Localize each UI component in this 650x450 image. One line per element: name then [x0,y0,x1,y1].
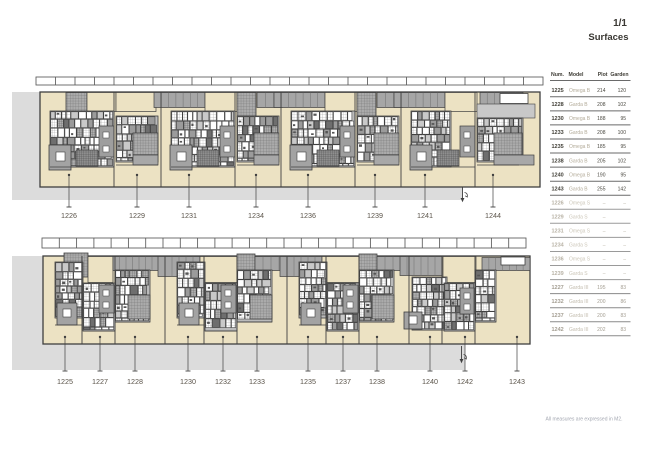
svg-text:188: 188 [597,116,606,122]
svg-text:Garda S: Garda S [569,215,588,221]
svg-text:1226: 1226 [61,211,77,220]
svg-text:Garda III: Garda III [569,327,588,333]
svg-text:1233: 1233 [552,130,564,136]
svg-text:–: – [623,271,626,277]
svg-text:1225: 1225 [552,88,564,94]
svg-text:83: 83 [620,285,626,291]
svg-text:1231: 1231 [552,229,564,235]
svg-text:Num.: Num. [551,72,565,78]
svg-text:1/1: 1/1 [613,18,627,29]
svg-text:1236: 1236 [300,211,316,220]
svg-text:–: – [603,271,606,277]
svg-text:1231: 1231 [181,211,197,220]
svg-text:Omega S: Omega S [569,201,591,207]
svg-text:Garda B: Garda B [569,186,588,192]
svg-text:202: 202 [597,327,606,333]
svg-text:190: 190 [597,172,606,178]
svg-text:1244: 1244 [485,211,501,220]
svg-text:95: 95 [620,116,626,122]
svg-text:1232: 1232 [552,299,564,305]
svg-text:200: 200 [597,299,606,305]
svg-text:255: 255 [597,186,606,192]
svg-text:185: 185 [597,144,606,150]
svg-text:Garda III: Garda III [569,285,588,291]
svg-text:Garda S: Garda S [569,243,588,249]
svg-text:Omega B: Omega B [569,172,591,178]
svg-text:100: 100 [618,130,627,136]
svg-text:1240: 1240 [422,377,438,386]
svg-text:102: 102 [618,158,627,164]
svg-text:Omega S: Omega S [569,229,591,235]
svg-text:Garda S: Garda S [569,271,588,277]
svg-text:1229: 1229 [552,215,564,221]
svg-text:Model: Model [569,72,585,78]
svg-text:205: 205 [597,158,606,164]
svg-text:1243: 1243 [552,186,564,192]
svg-text:1235: 1235 [300,377,316,386]
svg-text:1233: 1233 [249,377,265,386]
svg-text:All measures are expressed in: All measures are expressed in M2. [546,417,623,423]
svg-text:1239: 1239 [552,271,564,277]
svg-text:1228: 1228 [552,102,564,108]
svg-text:95: 95 [620,144,626,150]
svg-text:–: – [623,257,626,263]
svg-text:1240: 1240 [552,172,564,178]
svg-text:1234: 1234 [248,211,264,220]
svg-text:1234: 1234 [552,243,565,249]
svg-text:142: 142 [618,186,627,192]
svg-text:208: 208 [597,130,606,136]
svg-text:1229: 1229 [129,211,145,220]
svg-text:Garda III: Garda III [569,299,588,305]
svg-text:120: 120 [618,88,627,94]
svg-text:1242: 1242 [552,327,564,333]
svg-text:1238: 1238 [552,158,564,164]
svg-text:–: – [603,243,606,249]
svg-text:Omega B: Omega B [569,88,591,94]
svg-text:1239: 1239 [367,211,383,220]
svg-text:Garda B: Garda B [569,102,588,108]
svg-text:Garda B: Garda B [569,158,588,164]
svg-text:1230: 1230 [552,116,564,122]
svg-text:1227: 1227 [92,377,108,386]
svg-text:Surfaces: Surfaces [588,32,628,43]
svg-text:1242: 1242 [457,377,473,386]
svg-text:Garda B: Garda B [569,130,588,136]
svg-text:–: – [603,257,606,263]
svg-text:1230: 1230 [180,377,196,386]
svg-text:Plot: Plot [598,72,608,78]
svg-text:Omega B: Omega B [569,144,591,150]
svg-text:1227: 1227 [552,285,564,291]
svg-text:102: 102 [618,102,627,108]
svg-text:–: – [603,201,606,207]
svg-text:Garda III: Garda III [569,313,588,319]
svg-text:1237: 1237 [552,313,564,319]
svg-text:1226: 1226 [552,201,564,207]
svg-text:95: 95 [620,172,626,178]
svg-text:1241: 1241 [417,211,433,220]
svg-text:208: 208 [597,102,606,108]
svg-text:–: – [623,201,626,207]
svg-text:–: – [623,229,626,235]
svg-text:83: 83 [620,313,626,319]
svg-text:195: 195 [597,285,606,291]
svg-text:86: 86 [620,299,626,305]
svg-text:–: – [623,243,626,249]
svg-text:1232: 1232 [215,377,231,386]
svg-text:1235: 1235 [552,144,564,150]
svg-text:214: 214 [597,88,606,94]
svg-text:1237: 1237 [335,377,351,386]
svg-text:83: 83 [620,327,626,333]
svg-text:–: – [603,229,606,235]
svg-text:Garden: Garden [610,72,628,78]
svg-text:Omega B: Omega B [569,116,591,122]
svg-text:1236: 1236 [552,257,564,263]
svg-text:1228: 1228 [127,377,143,386]
svg-text:200: 200 [597,313,606,319]
svg-text:Omega S: Omega S [569,257,591,263]
svg-text:1238: 1238 [369,377,385,386]
svg-text:1225: 1225 [57,377,73,386]
svg-text:1243: 1243 [509,377,525,386]
svg-text:–: – [603,215,606,221]
